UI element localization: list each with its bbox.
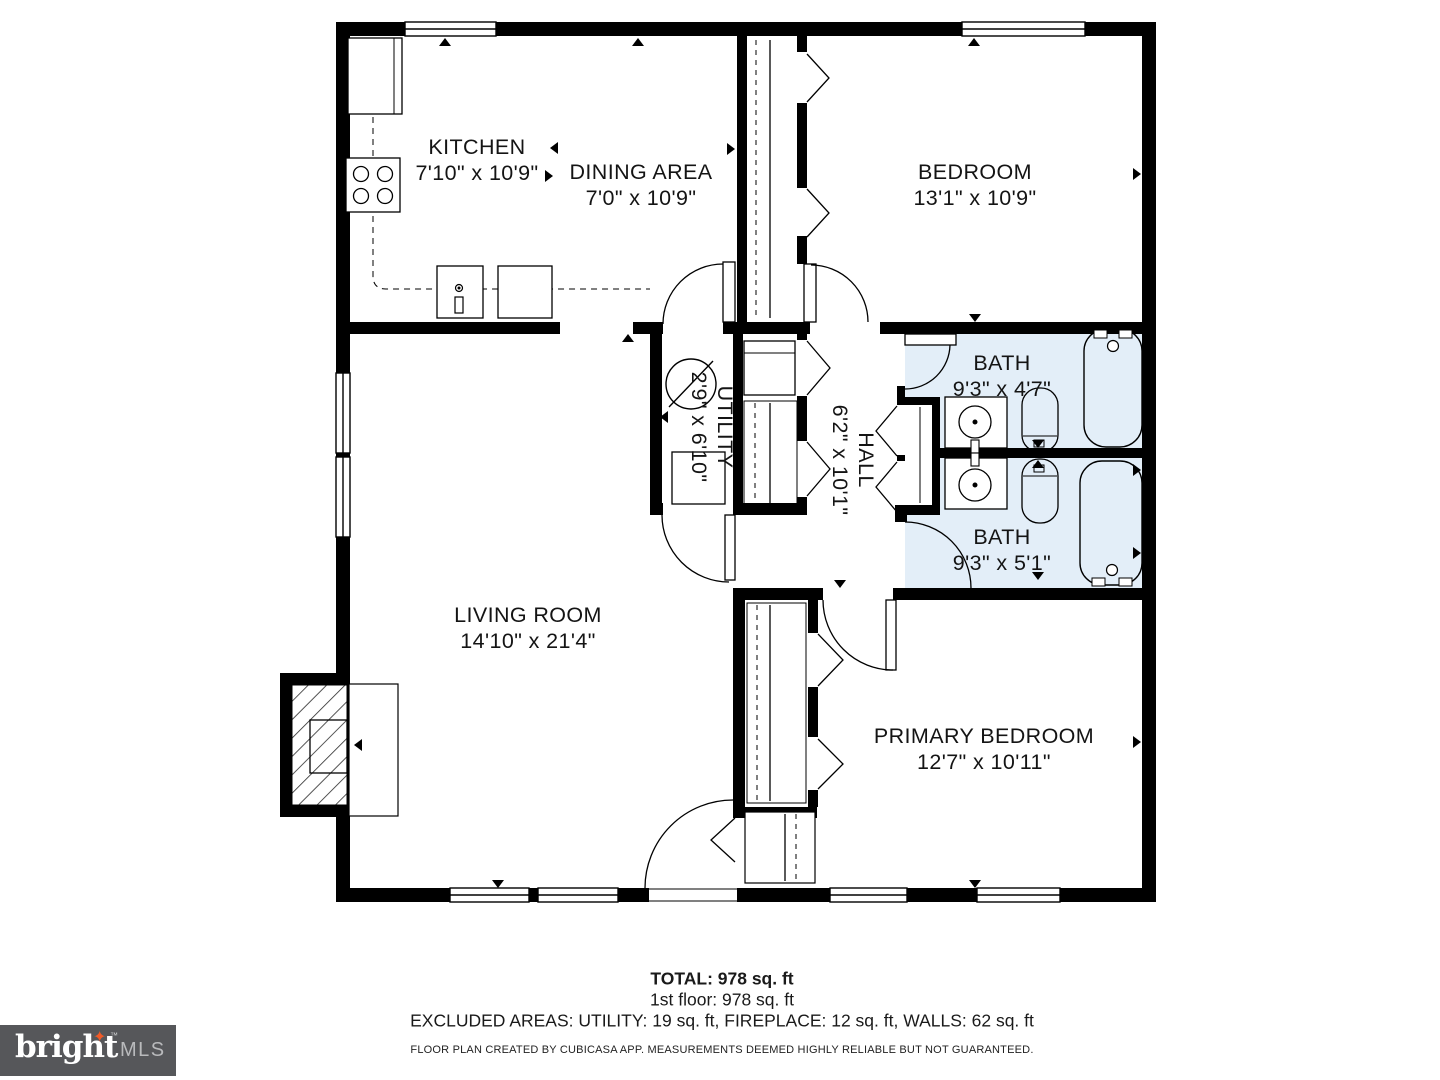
- living-bottom-window-2: [538, 888, 618, 902]
- bedroom-door: [804, 264, 868, 322]
- vanity-top: [945, 397, 1007, 453]
- dining-door: [663, 262, 735, 324]
- label-dining: DINING AREA 7'0" x 10'9": [570, 159, 713, 211]
- room-name: PRIMARY BEDROOM: [874, 723, 1094, 749]
- bedroom-window: [962, 22, 1085, 36]
- room-name: HALL: [853, 405, 879, 516]
- total-area-text: TOTAL: 978 sq. ft: [650, 969, 793, 990]
- excluded-areas-text: EXCLUDED AREAS: UTILITY: 19 sq. ft, FIRE…: [410, 1011, 1034, 1032]
- label-primary: PRIMARY BEDROOM 12'7" x 10'11": [874, 723, 1094, 775]
- kitchen-window: [405, 22, 496, 36]
- dishwasher: [498, 266, 552, 318]
- label-bedroom: BEDROOM 13'1" x 10'9": [913, 159, 1036, 211]
- label-bath-bottom: BATH 9'3" x 5'1": [953, 524, 1051, 576]
- primary-closet-1: [747, 603, 806, 803]
- floorplan-page: KITCHEN 7'10" x 10'9" DINING AREA 7'0" x…: [0, 0, 1440, 1080]
- living-bottom-window-1: [450, 888, 529, 902]
- stove: [346, 158, 400, 212]
- logo-star-icon: ✦: [93, 1027, 106, 1046]
- room-dims: 13'1" x 10'9": [913, 185, 1036, 211]
- primary-door: [823, 600, 896, 670]
- hearth: [349, 684, 398, 816]
- utility-door: [662, 515, 735, 582]
- bedroom-closet-bifold-1: [807, 54, 829, 102]
- room-name: UTILITY: [712, 372, 738, 483]
- entry-threshold: [649, 888, 737, 902]
- label-bath-top: BATH 9'3" x 4'7": [953, 350, 1051, 402]
- kitchen-sink: [437, 266, 483, 318]
- label-utility: UTILITY 2'9" x 6'10": [686, 372, 738, 483]
- room-name: KITCHEN: [415, 134, 538, 160]
- refrigerator: [348, 38, 402, 114]
- linen-closet-bifold-2: [876, 462, 897, 512]
- room-dims: 6'2" x 10'1": [827, 405, 853, 516]
- logo-mls-text: MLS: [120, 1039, 166, 1062]
- primary-window-2: [977, 888, 1060, 902]
- primary-closet-bifold-2: [818, 739, 843, 789]
- room-name: BEDROOM: [913, 159, 1036, 185]
- disclaimer-text: FLOOR PLAN CREATED BY CUBICASA APP. MEAS…: [410, 1044, 1033, 1056]
- living-left-window-1: [336, 373, 350, 453]
- primary-closet-bifold-1: [818, 634, 843, 686]
- hall-closet: [744, 401, 797, 507]
- label-hall: HALL 6'2" x 10'1": [827, 405, 879, 516]
- room-dims: 9'3" x 5'1": [953, 550, 1051, 576]
- room-dims: 9'3" x 4'7": [953, 376, 1051, 402]
- floorplan-drawing: [0, 0, 1440, 1080]
- room-dims: 7'0" x 10'9": [570, 185, 713, 211]
- room-dims: 14'10" x 21'4": [454, 628, 602, 654]
- primary-closet-2: [745, 812, 815, 883]
- fireplace: [280, 673, 398, 817]
- primary-closets: [745, 603, 815, 883]
- hall-appliance: [744, 341, 795, 395]
- room-dims: 12'7" x 10'11": [874, 749, 1094, 775]
- room-name: BATH: [953, 350, 1051, 376]
- room-name: BATH: [953, 524, 1051, 550]
- logo-trademark: ™: [110, 1031, 118, 1040]
- room-name: DINING AREA: [570, 159, 713, 185]
- bedroom-closet-bifold-2: [807, 189, 829, 237]
- room-name: LIVING ROOM: [454, 602, 602, 628]
- bright-mls-logo: bright ✦ ™ MLS: [0, 1025, 176, 1076]
- linen-closet-bifold-1: [876, 406, 897, 456]
- room-dims: 2'9" x 6'10": [686, 372, 712, 483]
- floor1-area-text: 1st floor: 978 sq. ft: [650, 990, 794, 1011]
- primary-window-1: [830, 888, 907, 902]
- entry-door: [645, 800, 735, 888]
- living-left-window-2: [336, 457, 350, 537]
- room-dims: 7'10" x 10'9": [415, 160, 538, 186]
- label-living: LIVING ROOM 14'10" x 21'4": [454, 602, 602, 654]
- vanity-bottom: [945, 453, 1007, 509]
- hall-closet-bifold-1: [807, 341, 830, 395]
- label-kitchen: KITCHEN 7'10" x 10'9": [415, 134, 538, 186]
- bedroom-closet-interior: [756, 40, 770, 318]
